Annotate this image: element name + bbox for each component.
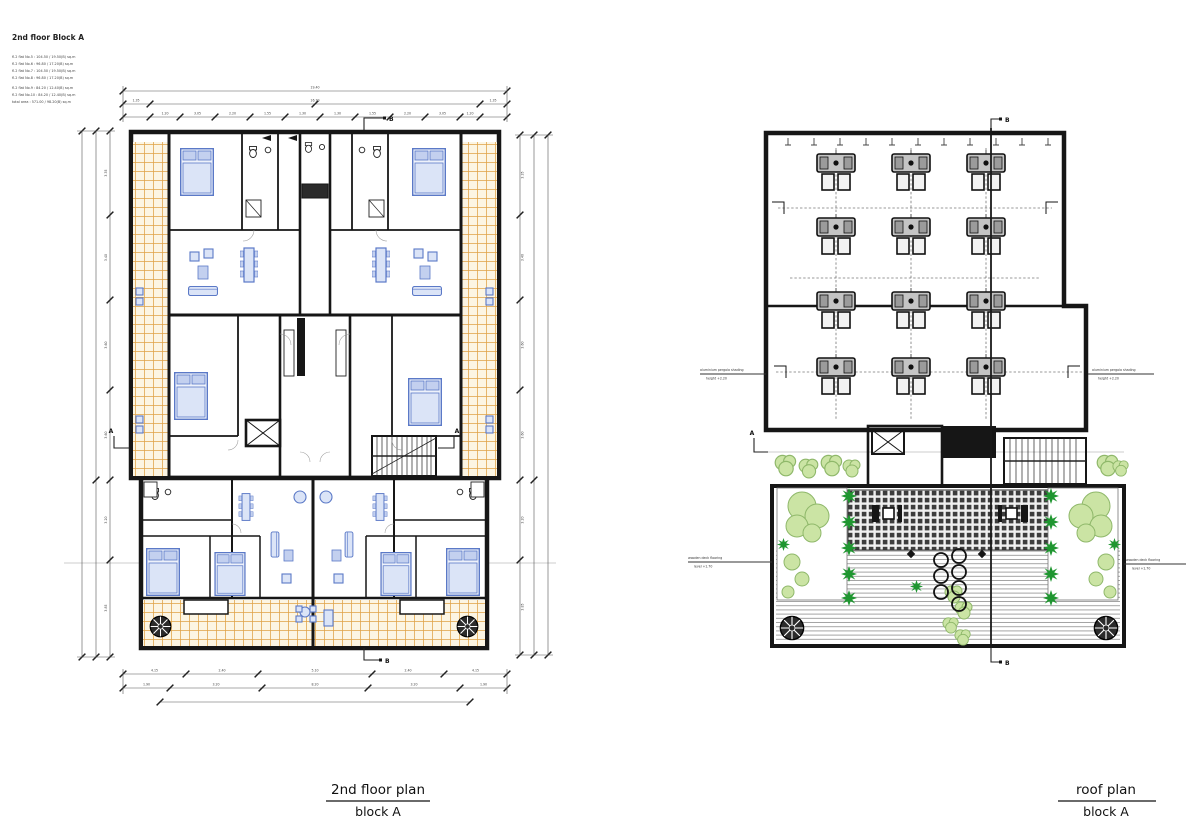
- dimension-lines-right: 3.35 3.40 3.60 3.60 3.20 3.85: [515, 135, 553, 655]
- armchair-icon: [414, 249, 423, 258]
- bed-icon: [175, 373, 208, 420]
- dim-label: 16.70: [310, 99, 319, 103]
- annotation-text: height +2.20: [706, 377, 727, 381]
- upper-roof-outline: [766, 133, 1086, 430]
- caption-subtitle: block A: [355, 804, 401, 819]
- dim-label: 1.20: [161, 112, 168, 116]
- dim-label: 1.55: [264, 112, 271, 116]
- sink-icon: [265, 147, 271, 153]
- sheet-title: 2nd floor Block A: [12, 33, 84, 42]
- sofa-icon: [189, 287, 218, 296]
- bed-icon: [409, 379, 442, 426]
- planter-icon: [150, 616, 171, 637]
- dim-label: 2.40: [218, 669, 225, 673]
- kitchen-counter: [336, 330, 346, 376]
- drawing-sheet: 2nd floor Block A fl.2 flat No.5 : 104.5…: [0, 0, 1200, 831]
- toilet-icon: [305, 143, 311, 153]
- sink-icon: [165, 489, 171, 495]
- schedule-line: total area : 571.00 / 98.20(B) sq.m: [12, 100, 72, 104]
- annotation-right: aluminium pergola shading height +2.20: [1088, 368, 1154, 381]
- dim-label: 1.35: [132, 99, 139, 103]
- caption-title: roof plan: [1076, 782, 1136, 798]
- section-marker-b-bottom: B: [364, 648, 390, 665]
- coffee-table-icon: [332, 550, 341, 561]
- armchair-icon: [190, 252, 199, 261]
- dim-label: 3.20: [521, 516, 525, 523]
- second-floor-plan: 19.40 1.35 16.70 1.35 1.20 3.05 2.20 1.5…: [64, 86, 556, 703]
- annotation-text: height +2.20: [1098, 377, 1119, 381]
- sofa-icon: [271, 532, 279, 557]
- annotation-text: wooden deck flooring: [1126, 558, 1160, 562]
- garden-left: [777, 488, 857, 606]
- caption-title: 2nd floor plan: [331, 782, 425, 798]
- dim-label: 1.90: [480, 683, 487, 687]
- dim-label: 19.40: [310, 86, 319, 90]
- dim-label: 1.90: [143, 683, 150, 687]
- planter-icon: [780, 616, 803, 639]
- dimension-lines-left: 3.35 3.40 3.60 3.60 3.20 3.85: [77, 131, 115, 657]
- schedule-line: fl.2 flat No.8 : 96.80 / 17.20(B) sq.m: [12, 76, 74, 80]
- annotation-left: aluminium pergola shading height +2.20: [700, 368, 766, 381]
- dim-label: 8.20: [311, 683, 318, 687]
- coffee-table-icon: [198, 266, 208, 279]
- section-label: B: [385, 658, 390, 665]
- coffee-table-icon: [420, 266, 430, 279]
- roof-stairs-icon: [1004, 438, 1086, 484]
- dim-label: 1.30: [334, 112, 341, 116]
- annotation-text: aluminium pergola shading: [1092, 368, 1136, 372]
- dim-label: 2.20: [229, 112, 236, 116]
- section-marker-b-bottom-roof: B: [991, 648, 1010, 667]
- dim-label: 3.05: [439, 112, 446, 116]
- section-label: A: [109, 428, 114, 435]
- dim-label: 3.20: [104, 516, 108, 523]
- annotation-text: level +1.70: [694, 565, 712, 569]
- schedule-line: fl.2 flat No.5 : 104.50 / 19.50(B) sq.m: [12, 55, 76, 59]
- dining-table-icon: [373, 494, 387, 521]
- dim-label: 3.60: [104, 341, 108, 348]
- section-marker-a-roof: A: [750, 430, 768, 452]
- sofa-icon: [413, 287, 442, 296]
- dim-label: 3.60: [521, 341, 525, 348]
- armchair-icon: [204, 249, 213, 258]
- section-label: B: [389, 116, 394, 123]
- roof-plan: A: [688, 117, 1186, 667]
- sofa-icon: [345, 532, 353, 557]
- dim-label: 5.10: [311, 669, 318, 673]
- kitchen-counter: [284, 330, 294, 376]
- section-marker-a-left: A: [109, 428, 130, 448]
- annotation-bottom-left: wooden deck flooring level +1.70: [688, 556, 772, 569]
- dim-label: 1.30: [299, 112, 306, 116]
- section-label: B: [1005, 117, 1010, 124]
- dim-label: 3.85: [104, 604, 108, 611]
- toilet-icon: [374, 147, 381, 158]
- dim-label: 3.60: [521, 431, 525, 438]
- dining-table-icon: [372, 248, 390, 282]
- bed-icon: [447, 549, 480, 596]
- roof-core: [868, 426, 996, 486]
- annotation-bottom-right: wooden deck flooring level +1.70: [1124, 558, 1186, 571]
- bed-icon: [413, 149, 446, 196]
- planter-icon: [1094, 616, 1117, 639]
- dim-label: 1.35: [489, 99, 496, 103]
- dim-label: 1.55: [369, 112, 376, 116]
- dim-label: 2.20: [404, 112, 411, 116]
- armchair-icon: [334, 574, 343, 583]
- bed-icon: [147, 549, 180, 596]
- dining-table-icon: [240, 248, 258, 282]
- annotation-text: level +1.70: [1132, 567, 1150, 571]
- sink-icon: [319, 144, 324, 149]
- dim-label: 3.20: [212, 683, 219, 687]
- annotation-text: wooden deck flooring: [688, 556, 722, 560]
- sheet-header: 2nd floor Block A fl.2 flat No.5 : 104.5…: [12, 33, 84, 104]
- schedule-line: fl.2 flat No.10 : 84.20 / 12.40(B) sq.m: [12, 93, 76, 97]
- strip-bushes: [775, 455, 1128, 478]
- bed-icon: [381, 553, 411, 596]
- dimension-lines-top: 19.40 1.35 16.70 1.35 1.20 3.05 2.20 1.5…: [123, 86, 507, 123]
- dim-label: 4.15: [151, 669, 158, 673]
- dim-label: 3.85: [521, 603, 525, 610]
- dining-table-icon: [239, 494, 253, 521]
- caption-subtitle: block A: [1083, 804, 1129, 819]
- left-plan-caption: 2nd floor plan block A: [326, 782, 430, 819]
- armchair-icon: [428, 252, 437, 261]
- lounger-icon: [324, 610, 333, 626]
- section-marker-b-top: B: [364, 116, 394, 130]
- toilet-icon: [250, 147, 257, 158]
- dim-label: 3.35: [521, 171, 525, 178]
- dim-label: 3.20: [410, 683, 417, 687]
- garden-right: [1043, 488, 1121, 606]
- dim-label: 3.40: [521, 254, 525, 261]
- dimension-lines-bottom: 4.15 2.40 5.10 2.40 4.15 1.90 3.20 8.20 …: [123, 669, 507, 703]
- round-table-icon: [320, 491, 332, 503]
- round-table-icon: [294, 491, 306, 503]
- dim-label: 3.40: [104, 254, 108, 261]
- plan-canvas: 2nd floor Block A fl.2 flat No.5 : 104.5…: [0, 0, 1200, 831]
- annotation-text: aluminium pergola shading: [700, 368, 744, 372]
- bed-icon: [181, 149, 214, 196]
- dim-label: 2.40: [404, 669, 411, 673]
- bed-icon: [215, 553, 245, 596]
- armchair-icon: [282, 574, 291, 583]
- coffee-table-icon: [284, 550, 293, 561]
- right-plan-caption: roof plan block A: [1058, 782, 1156, 819]
- schedule-line: fl.2 flat No.9 : 84.20 / 12.40(B) sq.m: [12, 86, 74, 90]
- sink-icon: [359, 147, 365, 153]
- section-label: B: [1005, 660, 1010, 667]
- dim-label: 3.35: [104, 169, 108, 176]
- section-label: A: [750, 430, 755, 437]
- section-marker-b-top-roof: B: [991, 117, 1010, 128]
- section-label: A: [455, 428, 460, 435]
- schedule-line: fl.2 flat No.7 : 104.50 / 19.50(B) sq.m: [12, 69, 76, 73]
- schedule-line: fl.2 flat No.6 : 96.80 / 17.20(B) sq.m: [12, 62, 74, 66]
- dim-label: 3.05: [194, 112, 201, 116]
- dim-label: 4.15: [472, 669, 479, 673]
- sink-icon: [457, 489, 463, 495]
- dim-label: 1.20: [466, 112, 473, 116]
- planter-icon: [457, 616, 478, 637]
- dim-label: 3.60: [104, 431, 108, 438]
